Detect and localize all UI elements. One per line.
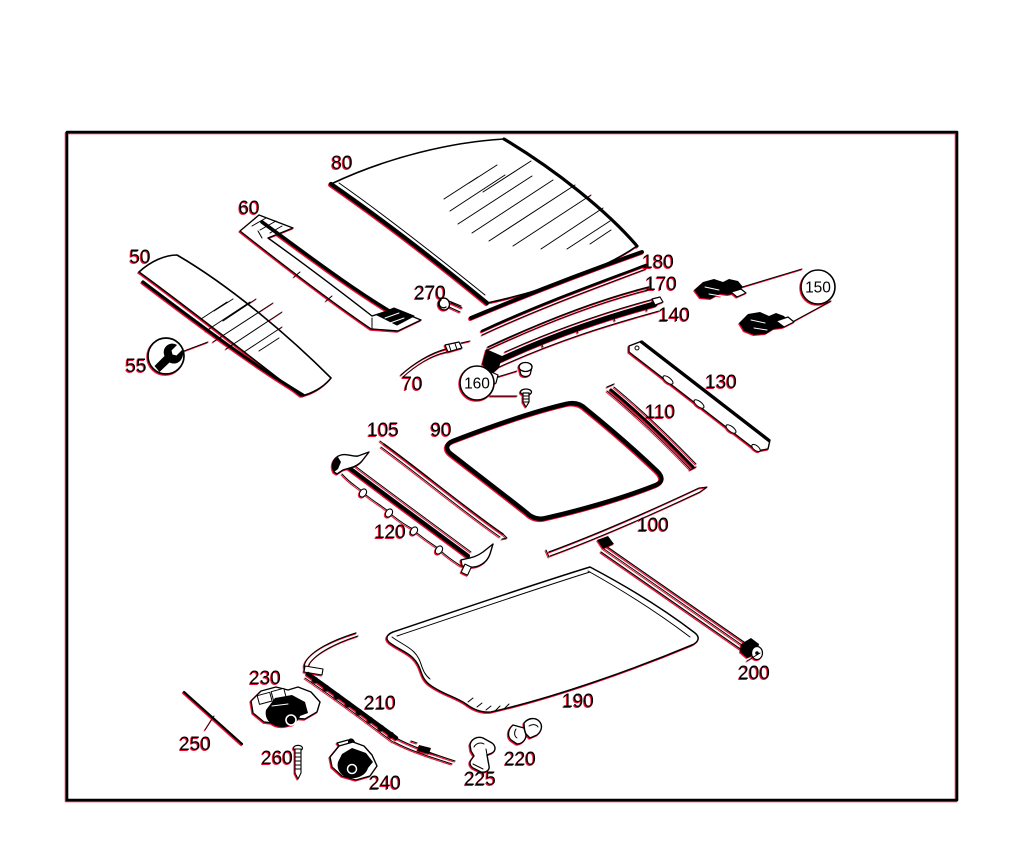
part-60-wind-deflector: [240, 215, 421, 331]
part-260-bolt: [294, 745, 303, 779]
part-220-clip: [509, 719, 542, 744]
callout-70[interactable]: 70: [401, 374, 422, 395]
callout-50[interactable]: 50: [129, 247, 150, 268]
callout-230[interactable]: 230: [249, 668, 281, 689]
callout-260[interactable]: 260: [261, 748, 293, 769]
exploded-parts-diagram: 5055607080901001051101201301401501601701…: [0, 0, 1024, 852]
wrench-symbol: [148, 338, 208, 374]
part-230-drive-motor: [251, 687, 320, 727]
callout-110[interactable]: 110: [645, 402, 675, 423]
callout-80[interactable]: 80: [331, 153, 352, 174]
callout-220[interactable]: 220: [504, 749, 536, 770]
callout-140[interactable]: 140: [658, 305, 690, 326]
part-130-guide-rail: [629, 341, 770, 453]
callout-180[interactable]: 180: [642, 252, 674, 273]
callout-150[interactable]: 150: [805, 280, 831, 297]
callout-200[interactable]: 200: [738, 663, 770, 684]
callout-190[interactable]: 190: [562, 691, 594, 712]
screw: [521, 389, 532, 407]
part-80-glass-panel: [331, 139, 642, 318]
part-225-bracket: [470, 737, 495, 772]
callout-210[interactable]: 210: [364, 693, 396, 714]
callout-250[interactable]: 250: [179, 734, 211, 755]
callout-270[interactable]: 270: [414, 283, 446, 304]
callout-105[interactable]: 105: [367, 420, 399, 441]
part-190-sunblind: [387, 567, 698, 712]
callout-120[interactable]: 120: [374, 522, 406, 543]
parts-diagram-page: 5055607080901001051101201301401501601701…: [0, 0, 1024, 852]
callout-170[interactable]: 170: [645, 274, 677, 295]
callout-160[interactable]: 160: [464, 376, 490, 393]
drive-motor-left: [694, 279, 746, 299]
callout-130[interactable]: 130: [705, 372, 737, 393]
callout-100[interactable]: 100: [637, 515, 669, 536]
part-90-seal-frame: [447, 403, 661, 519]
callout-90[interactable]: 90: [430, 420, 451, 441]
callout-240[interactable]: 240: [369, 773, 401, 794]
drive-motor-right: [739, 312, 794, 335]
callout-60[interactable]: 60: [238, 198, 259, 219]
part-70-cable: [401, 341, 470, 377]
part-110-trim-strip: [607, 384, 696, 470]
callout-225[interactable]: 225: [464, 769, 496, 790]
callout-55[interactable]: 55: [125, 356, 146, 377]
cap-nut: [519, 363, 532, 377]
